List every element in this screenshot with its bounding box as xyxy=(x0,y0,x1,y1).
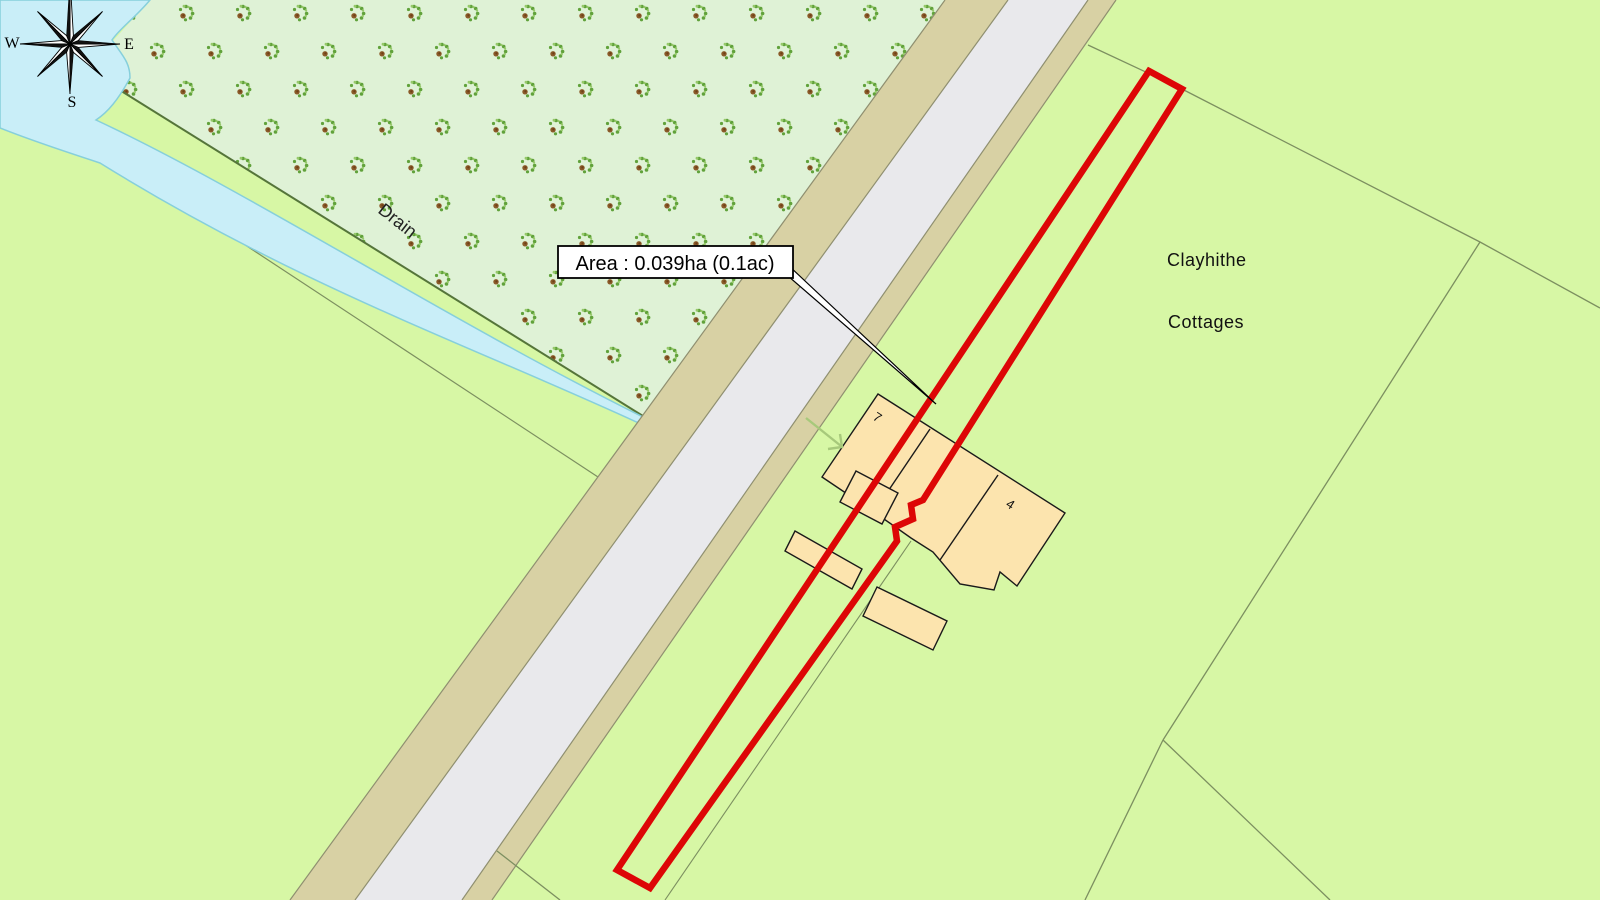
place-name-line1: Clayhithe xyxy=(1167,250,1247,270)
map-canvas: Area : 0.039ha (0.1ac) Drain Clayhithe C… xyxy=(0,0,1600,900)
compass-west-label: W xyxy=(4,35,20,52)
compass-south-label: S xyxy=(68,94,77,111)
site-plan-map: Area : 0.039ha (0.1ac) Drain Clayhithe C… xyxy=(0,0,1600,900)
area-annotation-label: Area : 0.039ha (0.1ac) xyxy=(575,253,774,275)
place-name-line2: Cottages xyxy=(1168,312,1244,332)
compass-east-label: E xyxy=(124,36,134,53)
